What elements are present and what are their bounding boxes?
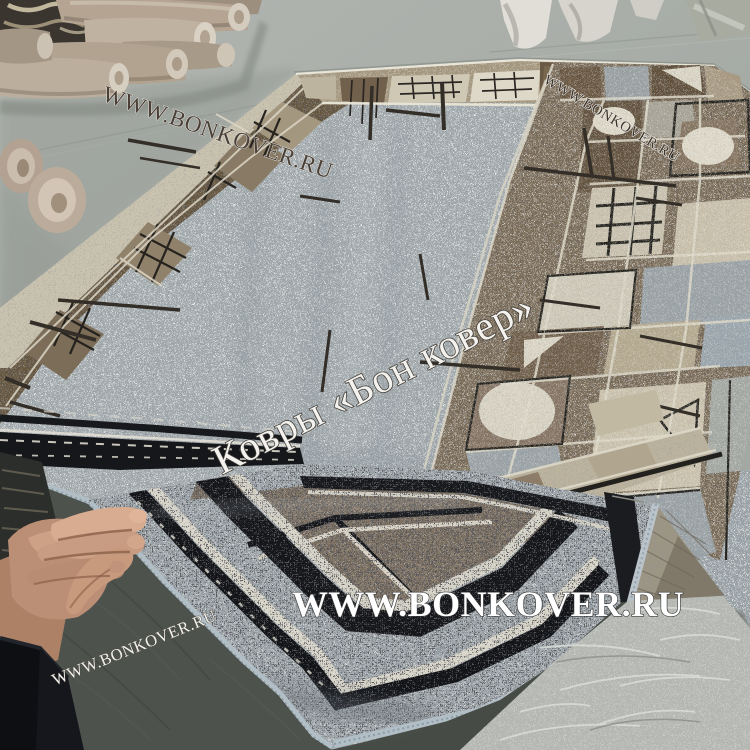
- svg-text:WWW.BONKOVER.RU: WWW.BONKOVER.RU: [292, 584, 684, 624]
